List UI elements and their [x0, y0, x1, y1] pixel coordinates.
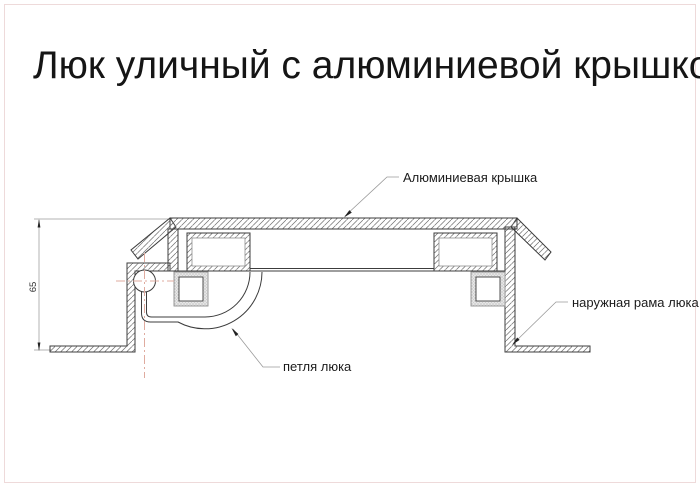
label-cover: Алюминиевая крышка [403, 170, 538, 185]
cover-plate [170, 218, 517, 229]
seal-profile-right [471, 272, 505, 306]
label-frame: наружная рама люка [572, 295, 699, 310]
centerlines [116, 253, 174, 378]
aluminum-cover [131, 218, 551, 271]
callout-cover: Алюминиевая крышка [344, 170, 538, 218]
drawing-page: Люк уличный с алюминиевой крышкой 65 [0, 0, 700, 490]
label-hinge: петля люка [283, 359, 352, 374]
callout-frame: наружная рама люка [512, 295, 699, 345]
technical-drawing: 65 [0, 0, 700, 490]
callout-hinge: петля люка [232, 328, 353, 374]
outer-frame-right [505, 227, 590, 352]
dimension-value: 65 [28, 282, 39, 293]
seal-profile-left [174, 272, 208, 306]
cover-web-left [168, 229, 178, 271]
